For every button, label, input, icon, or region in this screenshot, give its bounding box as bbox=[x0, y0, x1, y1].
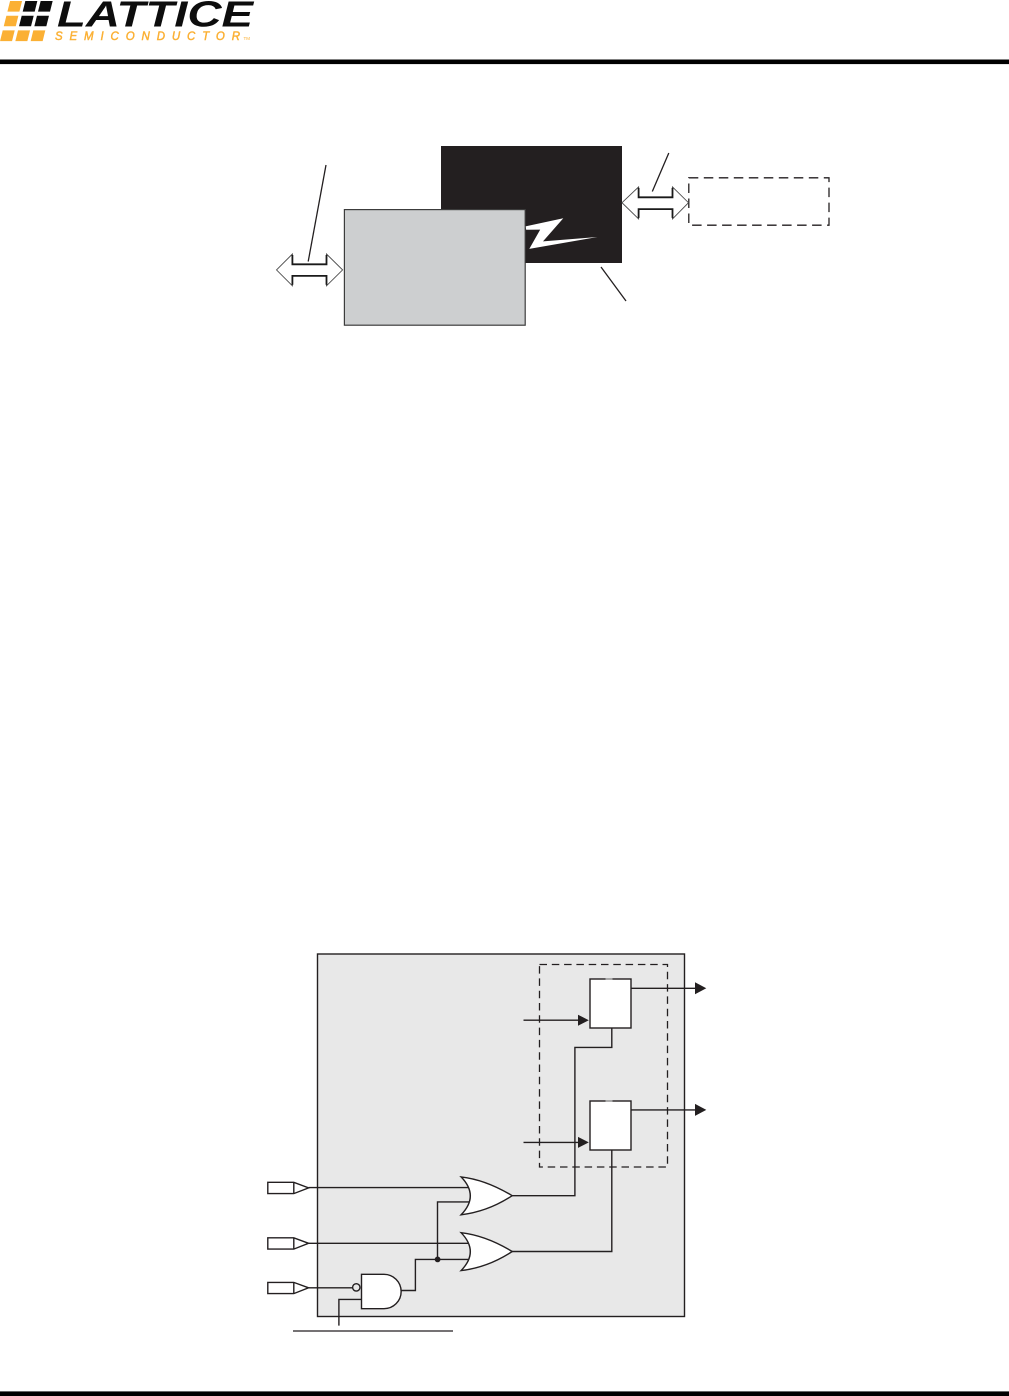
svg-text:LATTICE: LATTICE bbox=[57, 0, 254, 34]
svg-text:TM: TM bbox=[244, 36, 251, 41]
